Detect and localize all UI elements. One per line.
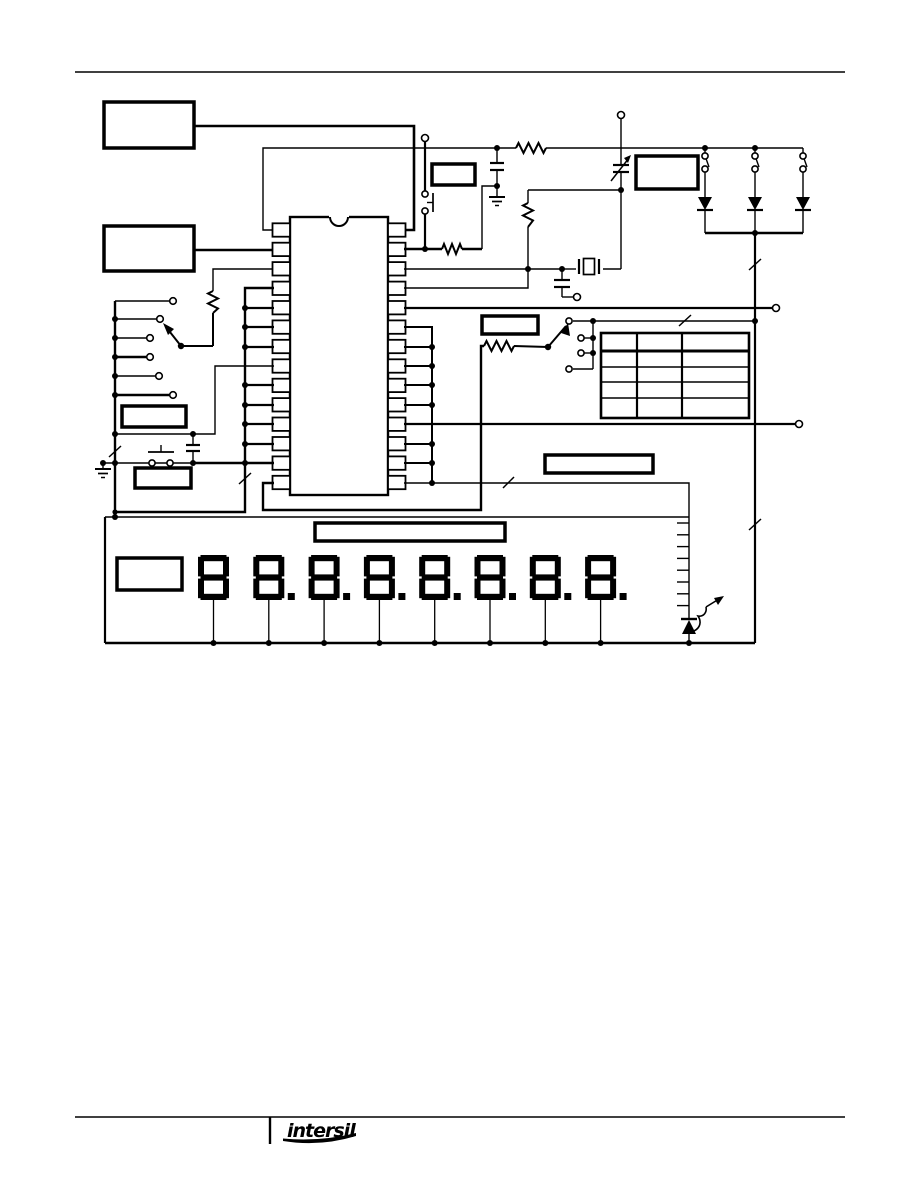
diode-symbol	[747, 172, 763, 233]
components	[95, 143, 811, 478]
switch-diode-branches	[697, 148, 811, 233]
bus-slashes	[109, 259, 761, 530]
wiper-arrowhead	[163, 323, 174, 335]
pushbutton-switch	[148, 445, 174, 452]
seven-segment-digit	[253, 555, 294, 646]
segment-bus-ticks	[677, 523, 689, 606]
seven-segment-digit	[475, 555, 517, 646]
label-box	[482, 316, 538, 334]
decimal-point	[454, 593, 461, 600]
label-box	[432, 164, 475, 185]
ground-symbol	[489, 197, 505, 206]
decimal-point	[288, 593, 295, 600]
seven-segment-digit	[198, 555, 229, 646]
label-box	[315, 523, 505, 541]
label-box	[117, 558, 182, 590]
crystal-symbol	[579, 259, 599, 275]
seven-segment-digit	[585, 555, 627, 646]
datasheet-page: intersil	[0, 0, 918, 1188]
label-box	[104, 226, 194, 271]
seven-segment-digit	[309, 555, 351, 646]
ic-chip	[273, 215, 406, 495]
decimal-point	[343, 593, 350, 600]
wires	[103, 118, 803, 643]
seven-segment-digits	[198, 555, 627, 646]
diode-symbol	[795, 172, 811, 233]
capacitor-symbol	[554, 280, 570, 287]
footer: intersil	[75, 1117, 845, 1144]
led-symbol	[681, 596, 724, 643]
capacitor-symbol	[490, 163, 504, 170]
resistor-symbol	[484, 341, 514, 351]
label-box	[135, 468, 191, 488]
capacitor-symbol	[186, 445, 200, 451]
label-box	[122, 406, 186, 427]
label-box	[545, 455, 653, 473]
resistor-symbol	[523, 203, 533, 227]
decimal-point	[564, 593, 571, 600]
resistor-symbol	[208, 291, 218, 313]
seven-segment-digit	[419, 555, 461, 646]
resistor-symbol	[442, 244, 462, 254]
decimal-point	[620, 593, 627, 600]
schematic-figure: intersil	[0, 0, 918, 1188]
label-box	[636, 156, 698, 189]
seven-segment-digit	[530, 555, 572, 646]
resistor-symbol	[516, 143, 546, 153]
label-box	[104, 102, 194, 148]
seven-segment-digit	[364, 555, 406, 646]
decimal-point	[398, 593, 405, 600]
truth-table	[601, 333, 749, 418]
decimal-point	[509, 593, 516, 600]
